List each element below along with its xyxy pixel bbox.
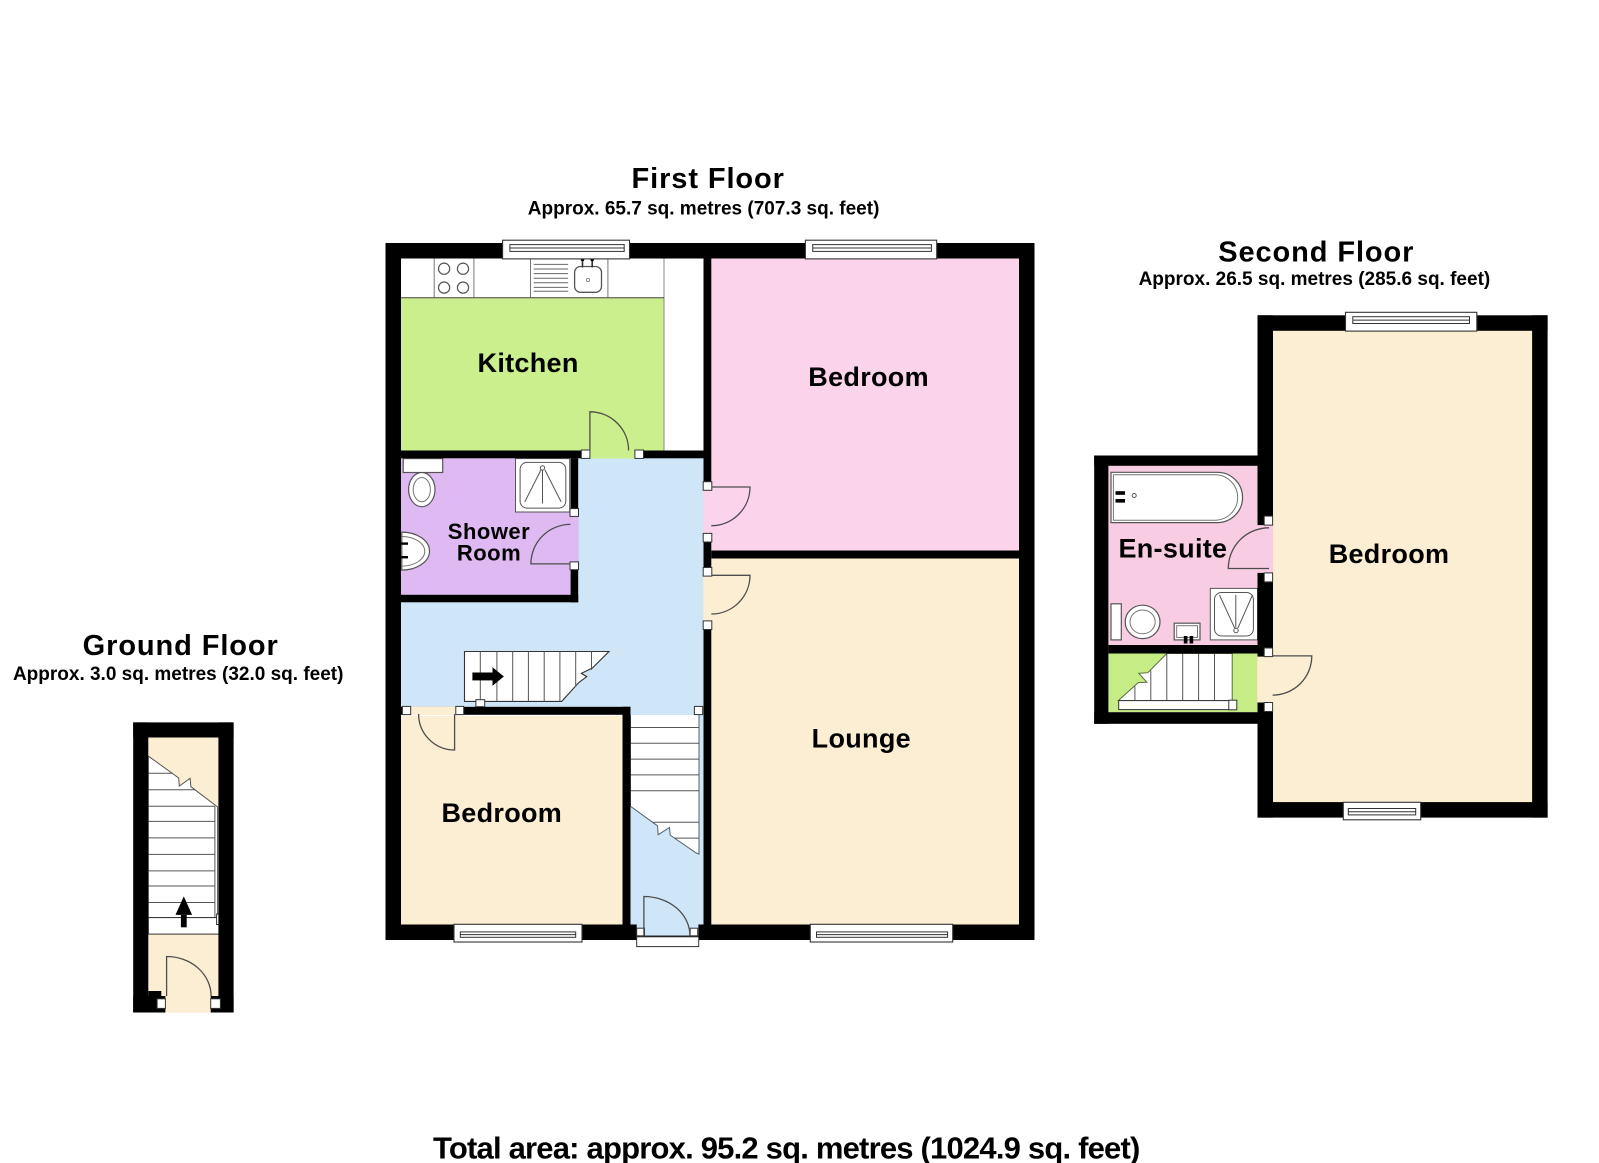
svg-text:Lounge: Lounge xyxy=(812,723,911,753)
svg-text:Approx. 65.7 sq. metres (707.3: Approx. 65.7 sq. metres (707.3 sq. feet) xyxy=(528,198,880,219)
svg-text:Approx. 3.0 sq. metres (32.0 s: Approx. 3.0 sq. metres (32.0 sq. feet) xyxy=(13,664,344,685)
svg-text:En-suite: En-suite xyxy=(1118,533,1227,563)
svg-text:First Floor: First Floor xyxy=(632,163,785,195)
svg-text:Second Floor: Second Floor xyxy=(1218,236,1414,268)
svg-text:Bedroom: Bedroom xyxy=(808,362,929,392)
svg-text:Bedroom: Bedroom xyxy=(1329,539,1450,569)
svg-text:Approx. 26.5 sq. metres (285.6: Approx. 26.5 sq. metres (285.6 sq. feet) xyxy=(1139,269,1491,290)
svg-text:Room: Room xyxy=(457,541,521,566)
svg-text:Kitchen: Kitchen xyxy=(478,348,579,378)
svg-text:Bedroom: Bedroom xyxy=(441,798,562,828)
svg-text:Total area: approx. 95.2 sq. m: Total area: approx. 95.2 sq. metres (102… xyxy=(433,1131,1140,1163)
svg-text:Ground Floor: Ground Floor xyxy=(83,630,279,662)
